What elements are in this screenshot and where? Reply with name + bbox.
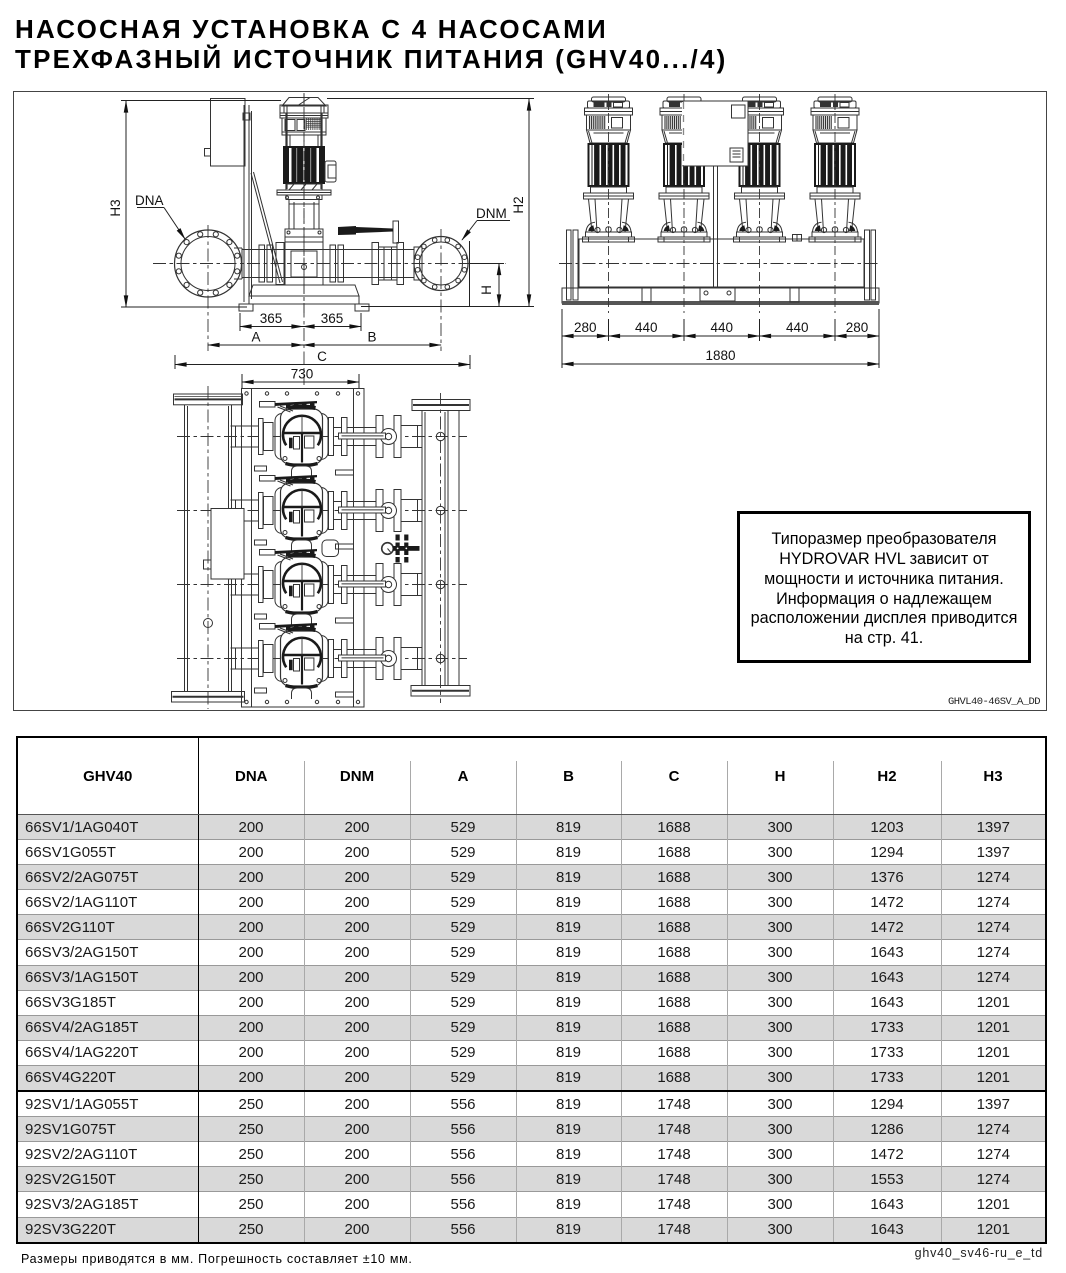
svg-text:365: 365 — [321, 311, 344, 326]
svg-text:1880: 1880 — [705, 348, 735, 363]
svg-text:DNA: DNA — [135, 193, 164, 208]
svg-text:365: 365 — [260, 311, 283, 326]
svg-text:H3: H3 — [108, 199, 123, 216]
svg-text:C: C — [317, 349, 327, 364]
svg-text:440: 440 — [635, 320, 658, 335]
svg-text:A: A — [251, 330, 260, 345]
svg-text:280: 280 — [574, 320, 597, 335]
svg-text:440: 440 — [711, 320, 734, 335]
svg-text:H: H — [479, 285, 494, 295]
svg-text:H2: H2 — [511, 196, 526, 213]
svg-text:DNM: DNM — [476, 206, 507, 221]
svg-text:730: 730 — [291, 367, 314, 382]
svg-text:280: 280 — [846, 320, 869, 335]
svg-text:B: B — [367, 330, 376, 345]
svg-text:440: 440 — [786, 320, 809, 335]
